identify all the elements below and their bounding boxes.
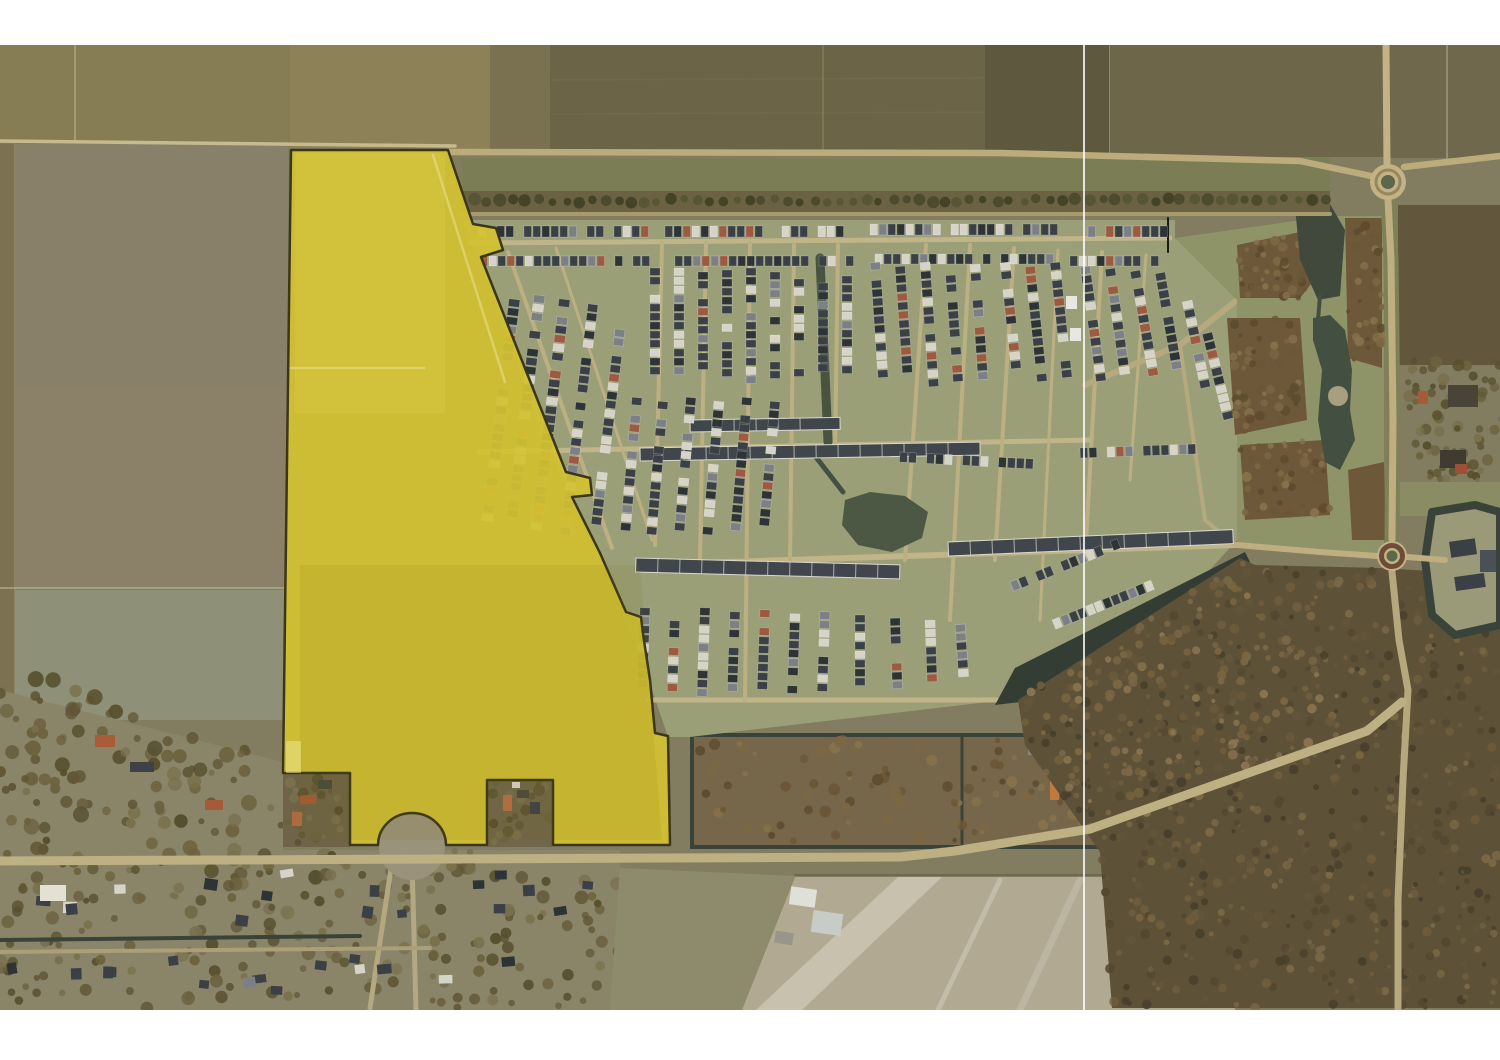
park-canal-link bbox=[1318, 296, 1320, 320]
moat-building-3 bbox=[1480, 550, 1496, 572]
road-r2-right bbox=[1407, 557, 1445, 560]
town-white-building-1 bbox=[1066, 296, 1077, 309]
village-farm-house-3 bbox=[205, 800, 223, 810]
right-farm-red bbox=[1418, 391, 1428, 404]
village-big-white-house bbox=[40, 885, 66, 901]
field-left-taupe bbox=[15, 388, 288, 588]
field-top-left bbox=[0, 45, 290, 142]
page bbox=[0, 0, 1500, 1060]
right-farm-barn bbox=[1448, 385, 1478, 407]
greenhouse-1 bbox=[789, 886, 817, 907]
field-top-far-right bbox=[1390, 45, 1500, 158]
avenue-green-strip bbox=[462, 158, 1330, 194]
field-top-darker bbox=[985, 45, 1110, 153]
plan-overlay-bright-upper bbox=[295, 153, 445, 413]
field-left-mid bbox=[15, 144, 288, 388]
village-farm-house-2 bbox=[130, 762, 154, 772]
greenhouse-shed bbox=[774, 931, 793, 945]
greenhouse-2 bbox=[811, 910, 844, 936]
aerial-map-image bbox=[0, 0, 1500, 1060]
village-farm-house-1 bbox=[95, 735, 115, 747]
field-left-strip bbox=[0, 144, 15, 710]
roundabout-1-center bbox=[1381, 175, 1395, 189]
field-top-right bbox=[1110, 45, 1390, 157]
right-strip-field bbox=[1398, 205, 1500, 365]
roundabout-2-center bbox=[1387, 551, 1398, 562]
margin-bottom bbox=[0, 1010, 1500, 1060]
plan-overlay-shade-lower bbox=[300, 565, 662, 840]
plan-overlay-pale-square bbox=[286, 741, 301, 773]
park-pond-island bbox=[1328, 386, 1348, 406]
town-white-building-2 bbox=[1070, 328, 1081, 341]
right-farm-red-2 bbox=[1455, 464, 1467, 474]
field-top-mid-transition bbox=[490, 45, 550, 150]
field-left-sage bbox=[15, 590, 288, 720]
park-shrub-bed-5 bbox=[1348, 462, 1386, 540]
field-top-dark bbox=[550, 45, 985, 152]
road-r1-up bbox=[1386, 45, 1387, 166]
margin-top bbox=[0, 0, 1500, 45]
